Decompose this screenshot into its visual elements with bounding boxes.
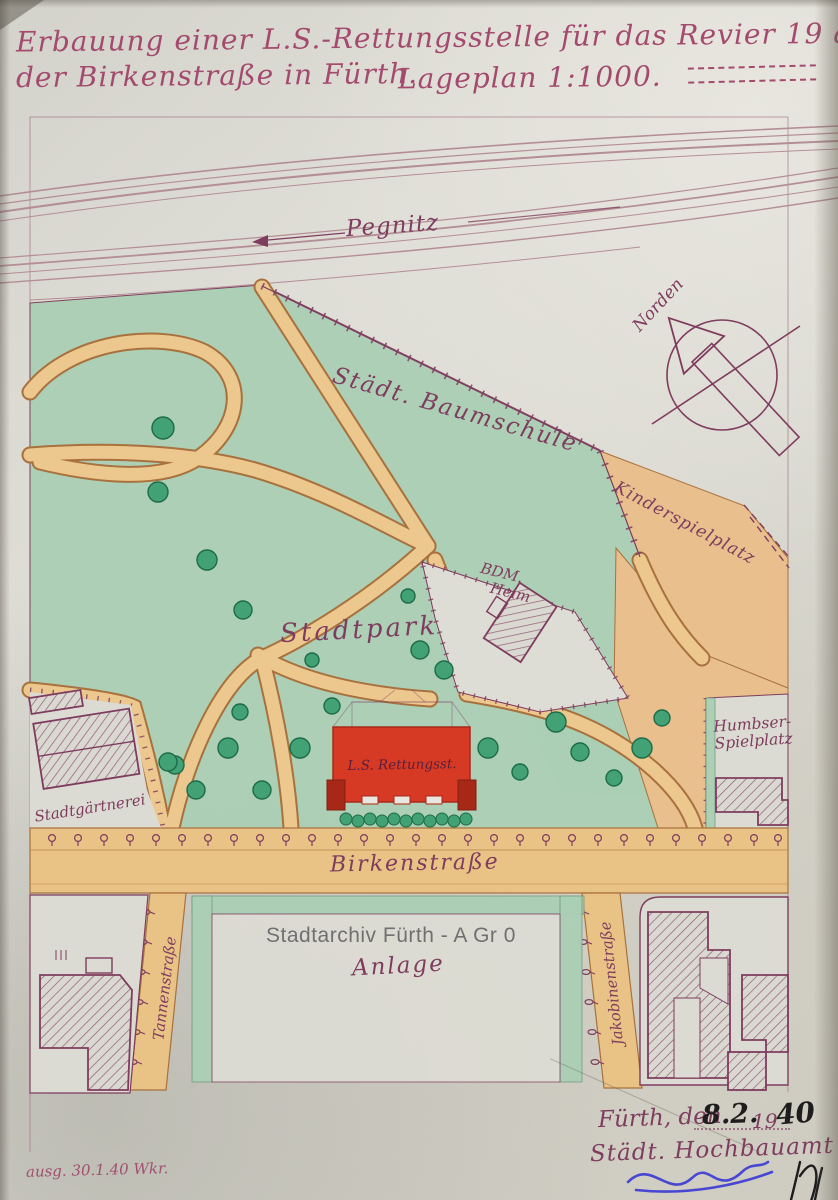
scan-edge-shadow-right [814, 0, 838, 1200]
shrub-row [340, 813, 472, 827]
map-drawing [0, 0, 838, 1200]
title-scale: Lageplan 1:1000. [398, 61, 662, 95]
corner-fold [0, 0, 44, 30]
bottom-left-block [30, 895, 148, 1093]
bottom-right-block [640, 897, 788, 1090]
title-dash-flourish [688, 64, 816, 83]
anlage-label: Anlage [351, 952, 445, 983]
birkenstrasse-label: Birkenstraße [330, 851, 500, 879]
title-line-2: der Birkenstraße in Fürth. [16, 58, 418, 94]
compass-rose [649, 299, 809, 465]
scanned-plan-document: Erbauung einer L.S.-Rettungsstelle für d… [0, 0, 838, 1200]
humbser-label: Humbser-Spielplatz [713, 713, 793, 753]
scan-edge-shadow-left [0, 0, 10, 1200]
archive-watermark: Stadtarchiv Fürth - A Gr 0 [266, 924, 516, 948]
date-underline [694, 1106, 790, 1130]
footer-note: ausg. 30.1.40 Wkr. [26, 1160, 169, 1181]
scan-edge-shadow-top [0, 0, 838, 8]
rettungsstelle-label: L.S. Rettungsst. [344, 757, 460, 774]
signature-stroke [628, 1162, 772, 1192]
